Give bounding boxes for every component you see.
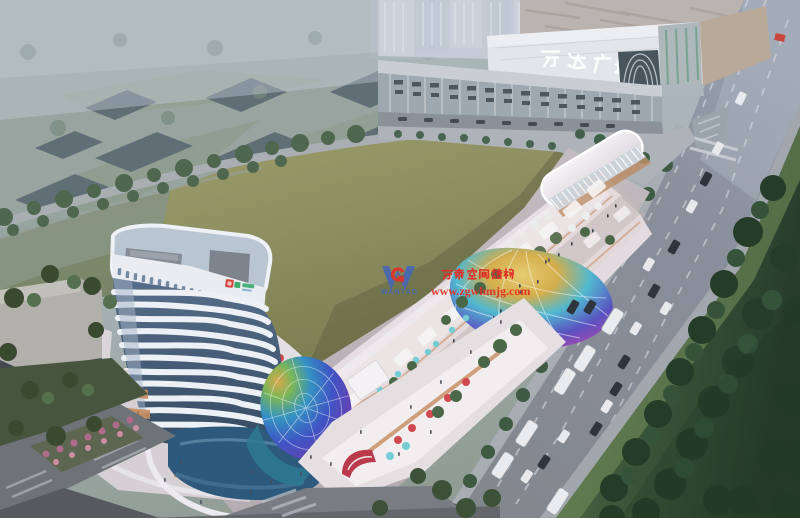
svg-text:WANTAO: WANTAO [381, 289, 418, 296]
svg-text:www.zgwhmjg.com: www.zgwhmjg.com [431, 284, 530, 298]
